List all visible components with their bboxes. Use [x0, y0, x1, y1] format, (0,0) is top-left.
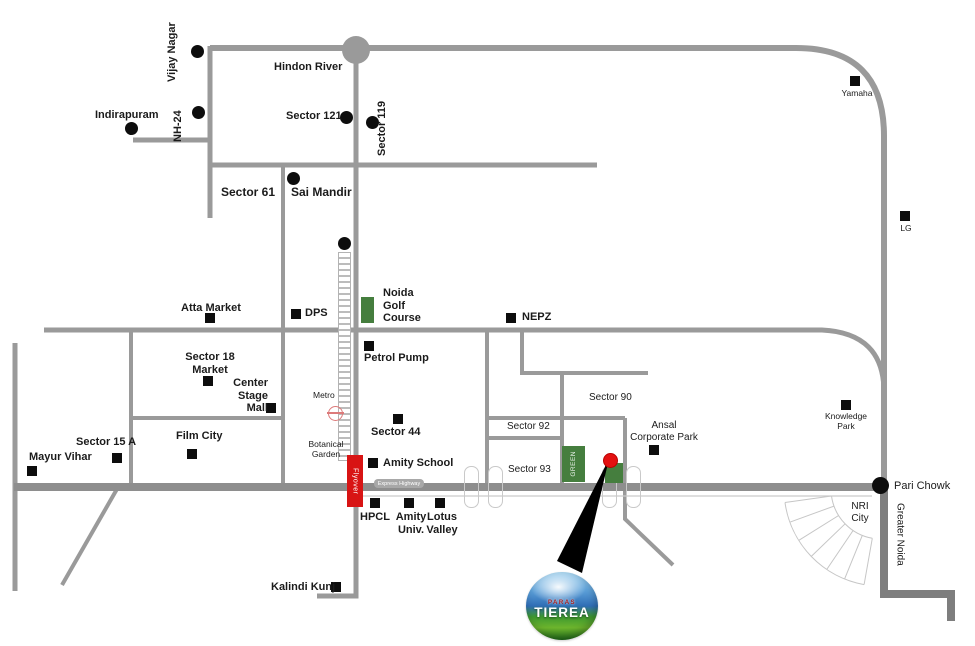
yamaha-marker	[850, 76, 860, 86]
sector-93-label: Sector 93	[508, 464, 551, 476]
sector-18-market-marker	[203, 376, 213, 386]
mayur-vihar-marker	[27, 466, 37, 476]
sector-44-marker	[393, 414, 403, 424]
flyover-marker: Flyover	[347, 455, 363, 507]
ansal-corporate-park-marker	[649, 445, 659, 455]
nh24-label: NH-24	[172, 94, 185, 142]
ansal-corporate-park-label: Ansal Corporate Park	[630, 420, 698, 443]
green-area-strip: GREEN	[562, 446, 585, 482]
roads-layer	[0, 0, 975, 646]
mayur-vihar-label: Mayur Vihar	[29, 451, 92, 464]
road-sector90-branch	[522, 330, 648, 373]
metro-line-track	[338, 252, 351, 461]
sector-121-label: Sector 121	[286, 110, 342, 123]
hpcl-label: HPCL	[360, 511, 390, 524]
underpass-loop-icon	[464, 466, 479, 508]
amity-school-label: Amity School	[383, 457, 453, 470]
hpcl-marker	[370, 498, 380, 508]
metro-label: Metro	[313, 391, 335, 401]
lg-label: LG	[900, 224, 911, 234]
sector-90-label: Sector 90	[589, 392, 632, 404]
botanical-garden-label: Botanical Garden	[309, 440, 344, 460]
site-location-dot	[603, 453, 618, 468]
sector-18-market-label: Sector 18 Market	[185, 351, 235, 376]
metro-logo-icon	[328, 406, 343, 421]
atta-market-label: Atta Market	[181, 302, 241, 315]
pari-chowk-junction	[872, 477, 889, 494]
vijay-nagar-label: Vijay Nagar	[166, 10, 179, 82]
knowledge-park-marker	[841, 400, 851, 410]
indirapuram-dot	[125, 122, 138, 135]
flyover-label: Flyover	[352, 468, 359, 494]
pari-chowk-label: Pari Chowk	[894, 480, 950, 493]
noida-golf-course-label: Noida Golf Course	[383, 287, 421, 325]
petrol-pump-label: Petrol Pump	[364, 352, 429, 365]
logo-name-text: TIEREA	[534, 606, 590, 621]
yamaha-label: Yamaha	[841, 89, 872, 99]
dps-marker	[291, 309, 301, 319]
indirapuram-label: Indirapuram	[95, 109, 159, 122]
sector-121-dot	[340, 111, 353, 124]
sector-44-label: Sector 44	[371, 426, 421, 439]
lg-marker	[900, 211, 910, 221]
sector-61-label: Sector 61	[221, 186, 275, 200]
dps-label: DPS	[305, 307, 328, 320]
noida-golf-course-area	[361, 297, 374, 323]
knowledge-park-label: Knowledge Park	[825, 412, 867, 432]
paras-tierea-logo: PARAS TIEREA	[526, 572, 598, 640]
center-stage-mall-label: Center Stage Mall	[226, 377, 268, 415]
nepz-marker	[506, 313, 516, 323]
sai-mandir-label: Sai Mandir	[291, 186, 352, 200]
road-mid-horizontal	[44, 330, 884, 392]
amity-univ-label: Amity Univ.	[396, 511, 427, 536]
green-strip-label: GREEN	[570, 451, 577, 477]
road-diagonal-bottom-left	[62, 489, 117, 585]
film-city-marker	[187, 449, 197, 459]
nepz-label: NEPZ	[522, 311, 551, 324]
petrol-pump-marker	[364, 341, 374, 351]
underpass-loop-icon	[488, 466, 503, 508]
kalindi-kunj-label: Kalindi Kunj	[271, 581, 335, 594]
sector-92-label: Sector 92	[507, 421, 550, 433]
hindon-river-junction	[342, 36, 370, 64]
sector-119-label: Sector 119	[376, 94, 389, 156]
sector-15a-marker	[112, 453, 122, 463]
underpass-loop-icon	[626, 466, 641, 508]
vijay-nagar-dot	[191, 45, 204, 58]
greater-noida-label: Greater Noida	[894, 503, 906, 573]
film-city-label: Film City	[176, 430, 222, 443]
sai-mandir-dot	[287, 172, 300, 185]
amity-school-marker	[368, 458, 378, 468]
nh24-dot	[192, 106, 205, 119]
lotus-valley-label: Lotus Valley	[426, 511, 457, 536]
hindon-river-label: Hindon River	[274, 61, 342, 74]
metro-terminal-dot	[338, 237, 351, 250]
amity-univ-marker	[404, 498, 414, 508]
nri-city-label: NRI City	[851, 501, 868, 524]
sector-15a-label: Sector 15 A	[76, 436, 136, 449]
lotus-valley-marker	[435, 498, 445, 508]
location-map: Flyover Express Highway GREEN Vijay Naga…	[0, 0, 975, 646]
express-highway-badge: Express Highway	[374, 479, 424, 488]
